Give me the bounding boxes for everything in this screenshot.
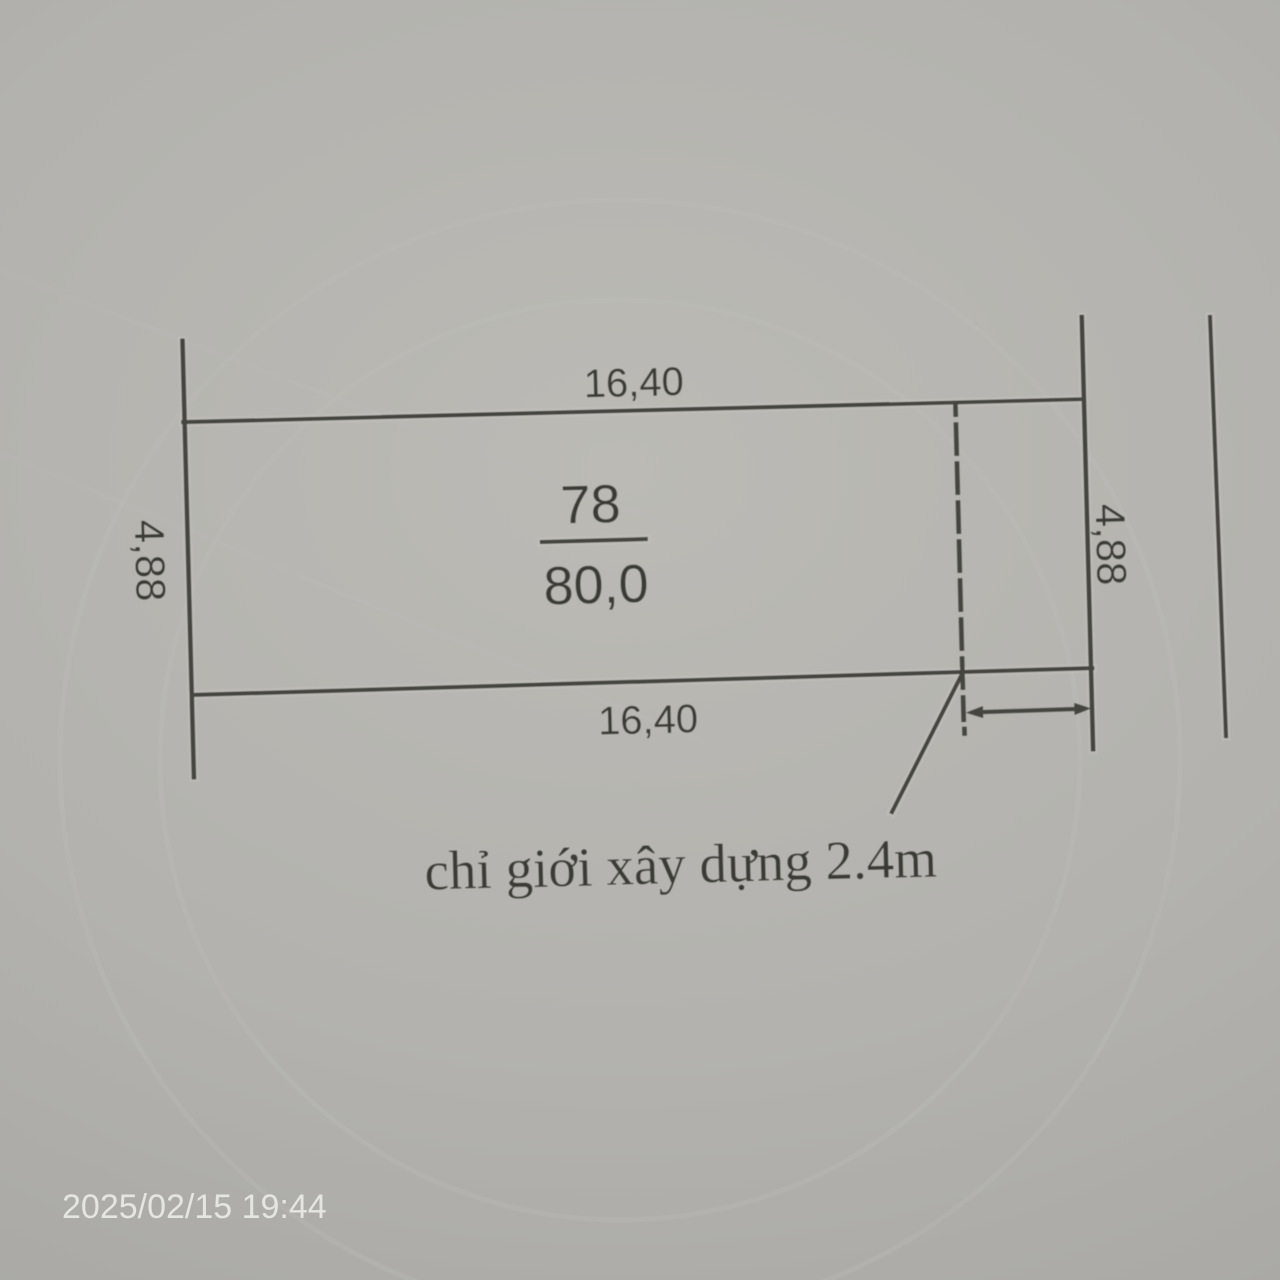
- svg-text:chỉ giới xây dựng 2.4m: chỉ giới xây dựng 2.4m: [424, 827, 938, 901]
- svg-text:4,88: 4,88: [1086, 503, 1135, 586]
- svg-text:2025/02/15 19:44: 2025/02/15 19:44: [62, 1188, 327, 1226]
- svg-text:80,0: 80,0: [543, 554, 650, 617]
- svg-text:4,88: 4,88: [125, 519, 174, 602]
- svg-text:16,40: 16,40: [597, 697, 698, 744]
- svg-text:16,40: 16,40: [583, 360, 684, 407]
- svg-text:78: 78: [560, 474, 622, 536]
